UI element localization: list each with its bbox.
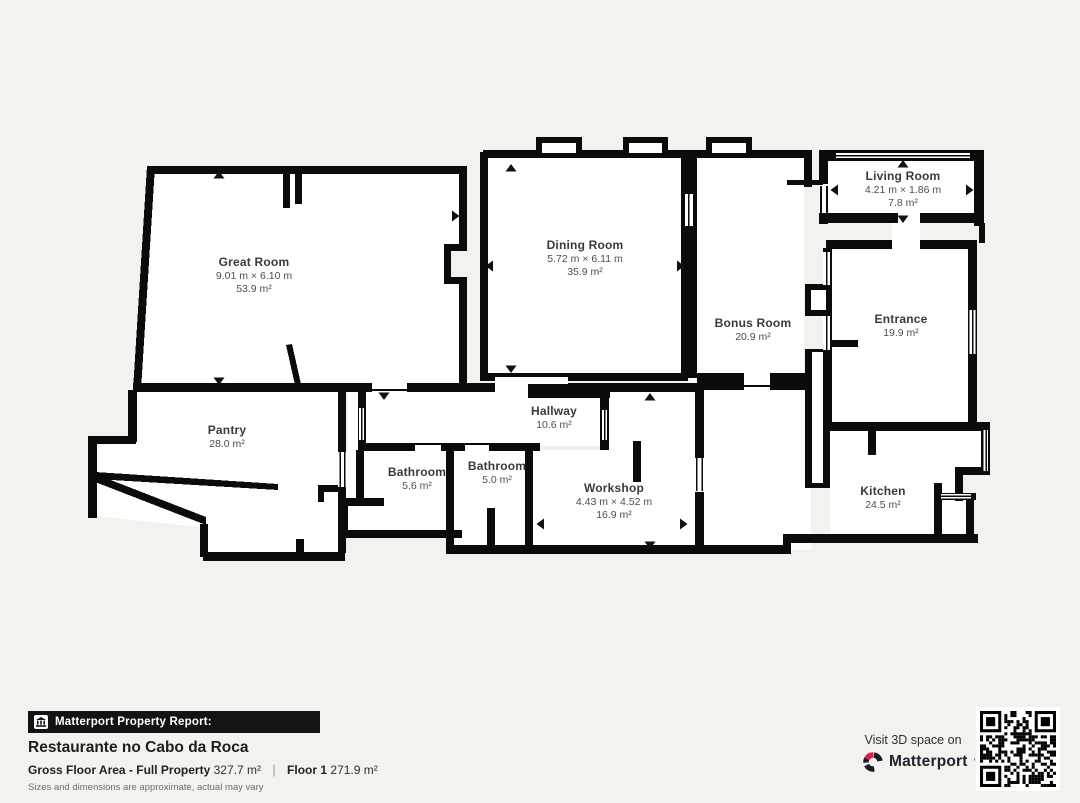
building-icon — [34, 715, 48, 729]
hallway-floor — [364, 390, 606, 446]
report-banner-label: Matterport Property Report: — [55, 716, 212, 728]
dining-room-floor — [483, 158, 688, 377]
matterport-logo: Matterport’ — [862, 751, 976, 773]
separator: | — [272, 762, 275, 777]
floor-plan: Great Room9.01 m × 6.10 m53.9 m²Dining R… — [0, 0, 1080, 803]
bonus-room-floor — [690, 158, 804, 390]
report-banner: Matterport Property Report: — [28, 711, 320, 733]
gross-floor-area-value: 327.7 m² — [214, 763, 261, 777]
property-name: Restaurante no Cabo da Roca — [28, 739, 249, 757]
disclaimer-text: Sizes and dimensions are approximate, ac… — [28, 782, 264, 793]
workshop-floor — [531, 450, 697, 548]
floor-label: Floor 1 — [287, 763, 327, 777]
matterport-wordmark: Matterport — [889, 753, 968, 771]
area-summary: Gross Floor Area - Full Property 327.7 m… — [28, 762, 378, 777]
corridor-floor — [701, 388, 811, 550]
entrance-floor — [830, 248, 970, 424]
gross-floor-area-label: Gross Floor Area - Full Property — [28, 763, 210, 777]
visit-3d-label: Visit 3D space on — [864, 733, 961, 747]
floor-area-value: 271.9 m² — [330, 763, 377, 777]
matterport-logo-icon — [862, 751, 884, 773]
floor-plan-walls — [0, 0, 1080, 803]
qr-code — [976, 707, 1060, 791]
